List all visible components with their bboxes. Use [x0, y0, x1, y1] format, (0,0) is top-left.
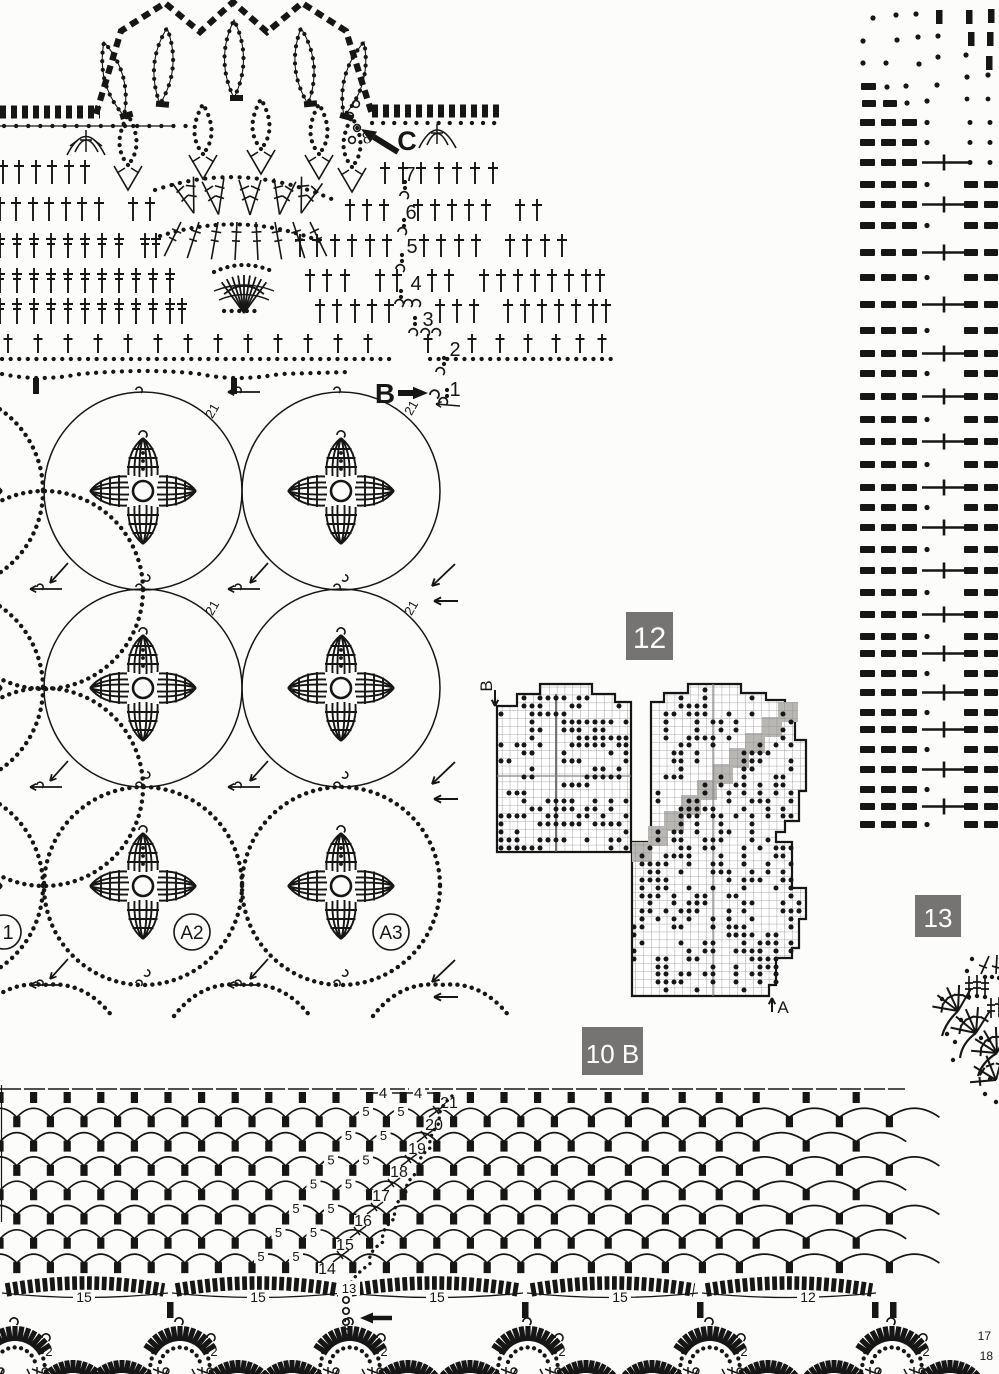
svg-text:2: 2 — [380, 1344, 387, 1359]
svg-text:13: 13 — [342, 1281, 356, 1296]
svg-text:6: 6 — [405, 202, 416, 224]
svg-text:A2: A2 — [180, 923, 203, 944]
svg-text:A3: A3 — [379, 923, 402, 944]
svg-text:12: 12 — [633, 622, 666, 655]
svg-text:15: 15 — [429, 1289, 445, 1305]
svg-text:5: 5 — [345, 1128, 352, 1143]
svg-text:15: 15 — [76, 1289, 92, 1305]
svg-text:2: 2 — [922, 1344, 929, 1359]
svg-text:B: B — [375, 378, 395, 409]
svg-text:2: 2 — [558, 1344, 565, 1359]
svg-text:2: 2 — [45, 1344, 52, 1359]
svg-text:5: 5 — [397, 1104, 404, 1119]
svg-text:A: A — [777, 998, 789, 1017]
svg-text:15: 15 — [250, 1289, 266, 1305]
svg-text:5: 5 — [362, 1104, 369, 1119]
svg-text:C: C — [397, 126, 417, 156]
svg-text:18: 18 — [980, 1349, 994, 1363]
svg-text:19: 19 — [408, 1141, 426, 1158]
svg-text:5: 5 — [406, 236, 417, 258]
svg-text:4: 4 — [410, 273, 421, 295]
svg-text:5: 5 — [275, 1225, 282, 1240]
svg-text:2: 2 — [210, 1344, 217, 1359]
svg-text:5: 5 — [310, 1177, 317, 1192]
svg-text:1: 1 — [449, 379, 460, 401]
svg-text:13: 13 — [924, 903, 953, 933]
svg-text:5: 5 — [310, 1225, 317, 1240]
svg-text:10 B: 10 B — [586, 1039, 640, 1069]
svg-text:B: B — [477, 680, 496, 691]
svg-text:5: 5 — [362, 1152, 369, 1167]
svg-text:5: 5 — [257, 1249, 264, 1264]
svg-text:14: 14 — [318, 1261, 336, 1278]
svg-text:15: 15 — [336, 1237, 354, 1254]
svg-text:2: 2 — [740, 1344, 747, 1359]
svg-text:1: 1 — [2, 922, 13, 944]
svg-text:15: 15 — [612, 1289, 628, 1305]
svg-text:17: 17 — [978, 1329, 992, 1343]
svg-text:5: 5 — [327, 1201, 334, 1216]
svg-text:17: 17 — [372, 1188, 390, 1205]
svg-text:4: 4 — [414, 1085, 422, 1102]
svg-text:5: 5 — [327, 1152, 334, 1167]
svg-text:7: 7 — [404, 164, 415, 186]
svg-text:5: 5 — [292, 1249, 299, 1264]
svg-text:5: 5 — [292, 1201, 299, 1216]
svg-text:21: 21 — [440, 1095, 458, 1112]
svg-text:12: 12 — [800, 1289, 816, 1305]
svg-text:2: 2 — [449, 339, 460, 361]
svg-text:5: 5 — [380, 1128, 387, 1143]
svg-text:3: 3 — [422, 309, 433, 331]
svg-text:5: 5 — [345, 1177, 352, 1192]
svg-text:4: 4 — [379, 1085, 387, 1102]
